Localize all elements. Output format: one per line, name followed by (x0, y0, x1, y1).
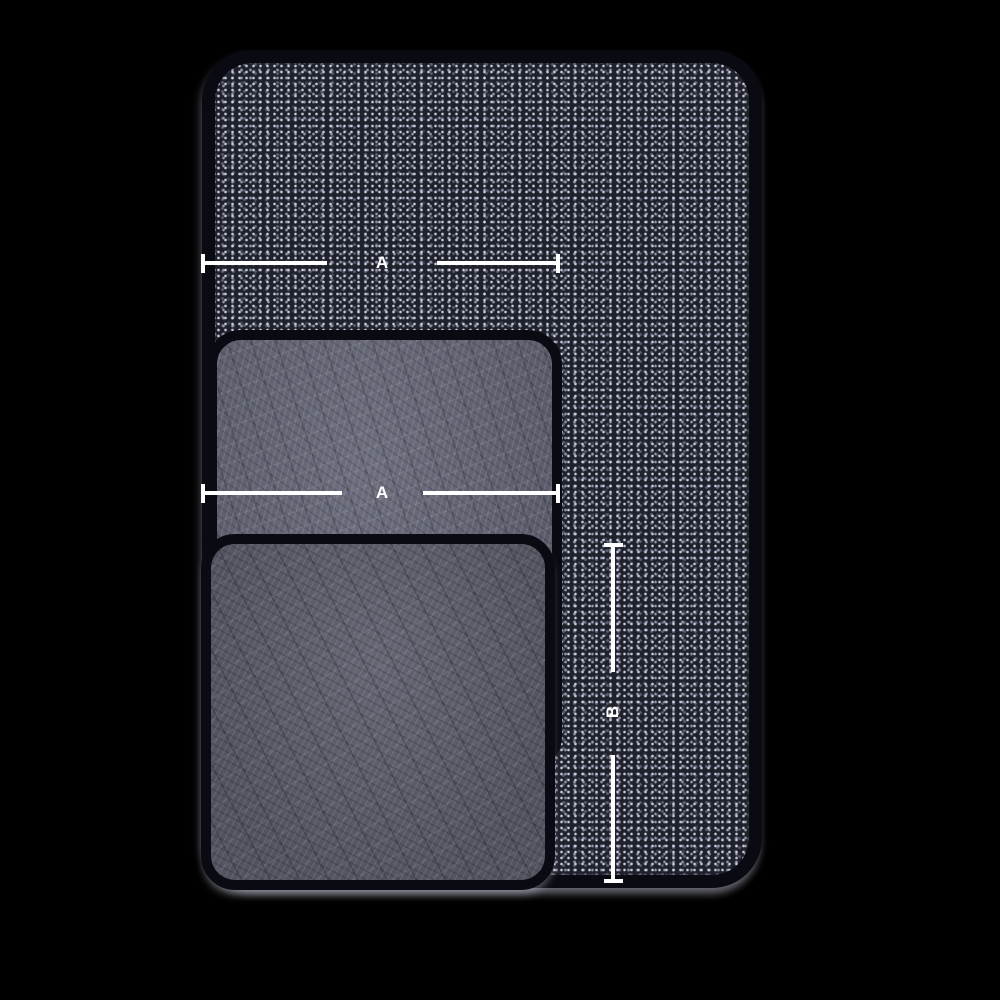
dim-a-middle-left-segment (205, 491, 342, 495)
dim-a-top-right-segment (437, 261, 556, 265)
dim-a-top-label: A (367, 252, 397, 274)
dim-a-top-right-tick (556, 254, 560, 273)
small-mat-photo (201, 534, 555, 890)
dim-b-label: B (602, 697, 624, 727)
dim-b-upper-segment (611, 547, 615, 672)
dim-a-middle-right-segment (423, 491, 556, 495)
dim-a-top-left-segment (205, 261, 327, 265)
dim-b-lower-segment (611, 755, 615, 879)
dim-a-middle-right-tick (556, 484, 560, 503)
dim-b-bottom-tick (604, 879, 623, 883)
mat-size-diagram: A A B (0, 0, 1000, 1000)
dim-a-middle-label: A (367, 482, 397, 504)
